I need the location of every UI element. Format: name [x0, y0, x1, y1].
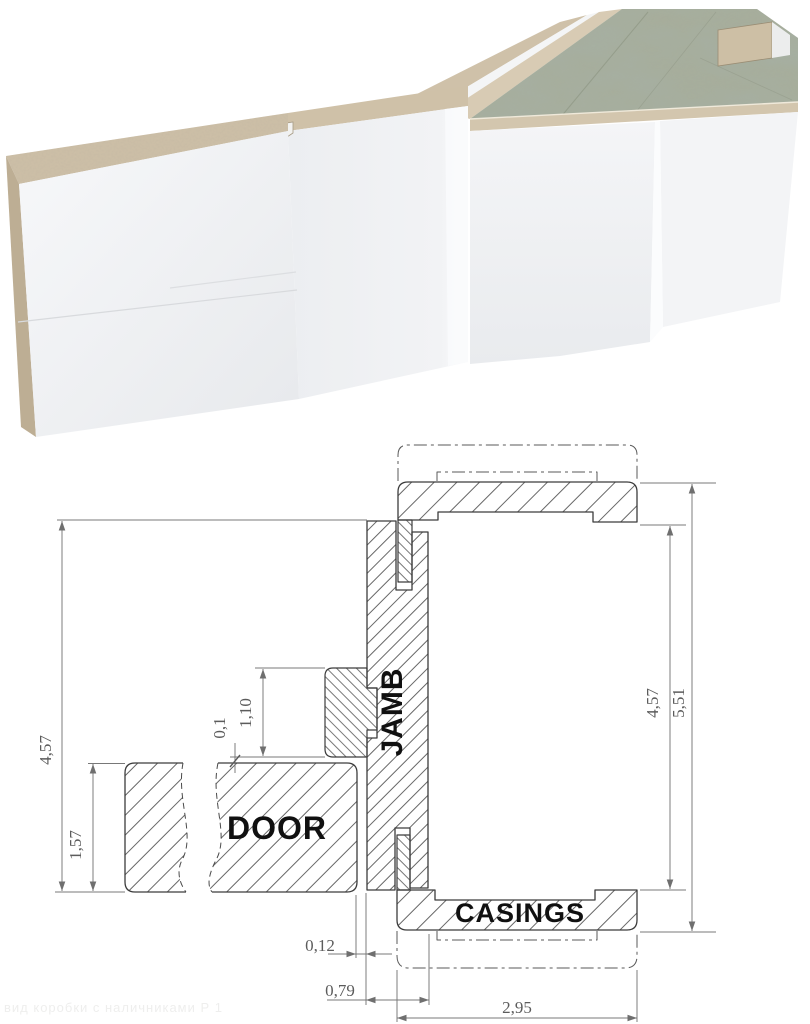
top-casing-leg	[398, 520, 412, 582]
casings-label: CASINGS	[455, 898, 585, 928]
watermark-text: вид коробки с наличниками Р 1	[4, 1000, 264, 1015]
jamb-profile-3d	[274, 86, 468, 399]
corner-notch-3d	[718, 22, 772, 66]
jamb-label: JAMB	[376, 667, 409, 756]
dim-jamb-depth: 0,79	[325, 981, 355, 1000]
dim-doorstop-width: 1,10	[236, 698, 255, 728]
bottom-casing-leg	[397, 835, 410, 890]
dim-overall-height-right: 5,51	[669, 688, 688, 718]
dim-door-thickness: 1,57	[66, 830, 85, 860]
casing-board-3d	[6, 113, 299, 437]
dim-door-clearance: 0,1	[210, 717, 229, 738]
product-photo	[6, 9, 798, 437]
dim-frame-height-left: 4,57	[36, 735, 55, 765]
dim-door-jamb-gap: 0,12	[305, 936, 335, 955]
top-casing-section	[398, 482, 637, 582]
dim-casing-width: 2,95	[502, 998, 532, 1017]
door-label: DOOR	[227, 810, 327, 846]
technical-drawing: 4,57 1,57 1,10 0,1 4,57 5,51 0,12 0,79 2…	[36, 445, 716, 1022]
door-frame-figure: 4,57 1,57 1,10 0,1 4,57 5,51 0,12 0,79 2…	[0, 0, 810, 1024]
screenshot-root: 4,57 1,57 1,10 0,1 4,57 5,51 0,12 0,79 2…	[0, 0, 810, 1024]
dim-opening-height-right: 4,57	[643, 688, 662, 718]
